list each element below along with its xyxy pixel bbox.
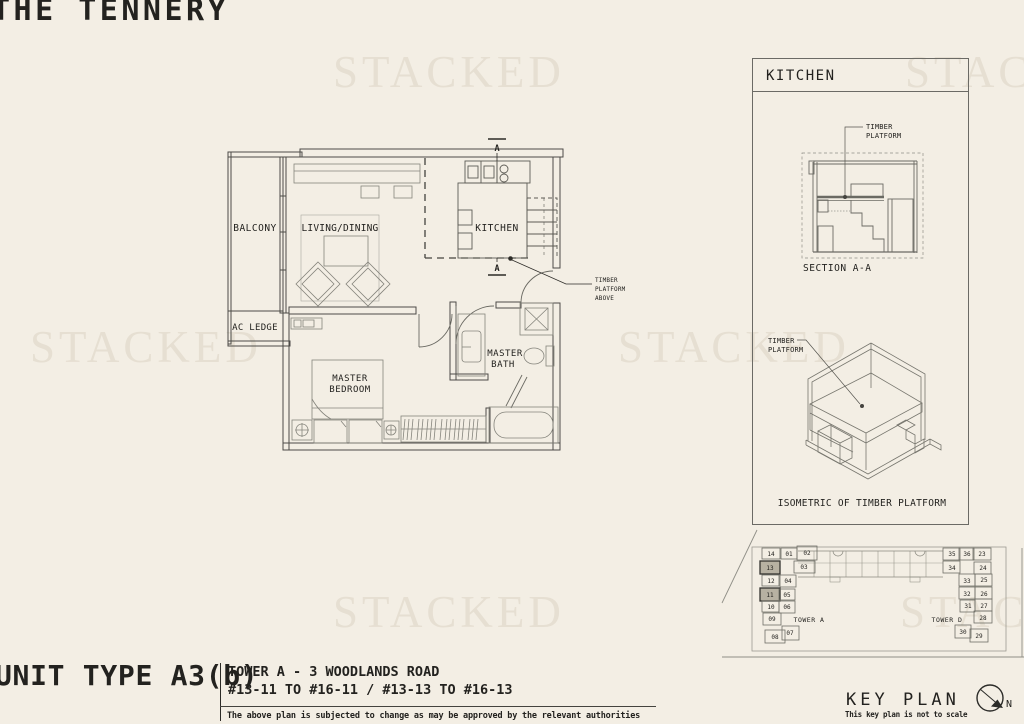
- keyplan-unit-label: 02: [803, 550, 811, 557]
- tower-address: TOWER A - 3 WOODLANDS ROAD: [228, 664, 439, 680]
- timber-platform-above-callout: PLATFORM: [595, 286, 626, 293]
- keyplan-unit-label: 01: [785, 551, 793, 558]
- keyplan-unit-36: [959, 548, 974, 560]
- keyplan-unit-label: 33: [963, 578, 971, 585]
- keyplan-unit-25: [975, 574, 992, 586]
- timber-platform-above-callout: ABOVE: [595, 295, 614, 302]
- keyplan-unit-34: [943, 561, 960, 573]
- master-bath-label: BATH: [491, 360, 515, 370]
- key-plan-tower-a: [760, 546, 817, 643]
- stacked-watermark: STACKED: [333, 586, 565, 638]
- keyplan-unit-label: 03: [800, 564, 808, 571]
- keyplan-unit-10: [762, 601, 779, 612]
- keyplan-unit-05: [779, 589, 795, 600]
- kitchen-fixtures: [425, 158, 557, 258]
- keyplan-unit-label: 04: [784, 578, 792, 585]
- keyplan-unit-label: 13: [766, 565, 774, 572]
- north-label: N: [1006, 699, 1012, 710]
- floor-plan-page: STACKED STACKED STACKED STACKED STACKED …: [0, 0, 1024, 724]
- keyplan-unit-04: [780, 575, 796, 587]
- keyplan-unit-08: [765, 630, 785, 643]
- keyplan-unit-label: 08: [771, 634, 779, 641]
- unit-numbers: #13-11 TO #16-11 / #13-13 TO #16-13: [228, 682, 512, 698]
- page-title: THE TENNERY: [0, 0, 229, 28]
- keyplan-unit-label: 09: [768, 616, 776, 623]
- keyplan-unit-12: [762, 575, 779, 586]
- disclaimer-text: The above plan is subjected to change as…: [227, 711, 640, 721]
- bathroom-fixtures: [458, 303, 558, 443]
- kitchen-panel-title: KITCHEN: [753, 59, 968, 92]
- master-bedroom-label: MASTER: [332, 374, 368, 384]
- master-bedroom-label: BEDROOM: [329, 385, 371, 395]
- keyplan-unit-33: [959, 574, 975, 586]
- keyplan-unit-label: 11: [766, 592, 774, 599]
- keyplan-unit-label: 23: [978, 551, 986, 558]
- keyplan-unit-label: 35: [948, 551, 956, 558]
- keyplan-unit-11: [760, 588, 780, 601]
- keyplan-unit-35: [943, 548, 960, 560]
- keyplan-unit-06: [779, 601, 795, 613]
- floor-plan-labels: BALCONY LIVING/DINING KITCHEN AC LEDGE M…: [232, 144, 626, 395]
- keyplan-unit-label: 05: [783, 592, 791, 599]
- keyplan-unit-label: 14: [767, 551, 775, 558]
- keyplan-unit-09: [763, 613, 781, 625]
- keyplan-unit-13: [760, 561, 780, 574]
- tower-a-label: TOWER A: [794, 616, 825, 624]
- keyplan-unit-label: 06: [783, 604, 791, 611]
- bedroom-furniture: [292, 360, 486, 443]
- timber-platform-above-callout: TIMBER: [595, 277, 618, 284]
- stacked-watermark: STACKED: [333, 46, 565, 98]
- north-compass-icon: N: [977, 685, 1012, 711]
- key-plan-caption: KEY PLAN: [846, 690, 960, 710]
- stacked-watermark: STACKED: [900, 586, 1024, 638]
- kitchen-detail-panel: KITCHEN: [752, 58, 969, 525]
- section-marker-a-top: A: [494, 144, 499, 154]
- living-furniture: [291, 164, 420, 329]
- keyplan-unit-label: 24: [979, 565, 987, 572]
- balcony-label: BALCONY: [233, 223, 277, 234]
- kitchen-label: KITCHEN: [475, 223, 519, 234]
- keyplan-unit-02: [797, 546, 817, 560]
- keyplan-unit-label: 10: [767, 604, 775, 611]
- unit-floor-plan-walls: [228, 149, 563, 450]
- title-block-divider: [220, 663, 221, 721]
- keyplan-unit-01: [781, 548, 797, 559]
- keyplan-unit-label: 36: [963, 551, 971, 558]
- keyplan-unit-label: 25: [980, 577, 988, 584]
- key-plan-mid-block: [798, 551, 943, 582]
- section-markers: [488, 139, 592, 284]
- stacked-watermark: STACKED: [30, 321, 262, 373]
- keyplan-unit-23: [973, 548, 991, 560]
- keyplan-unit-label: 07: [786, 630, 794, 637]
- keyplan-unit-14: [762, 548, 780, 559]
- keyplan-unit-24: [974, 562, 991, 574]
- keyplan-unit-label: 12: [767, 578, 775, 585]
- keyplan-unit-label: 34: [948, 565, 956, 572]
- keyplan-unit-03: [794, 561, 815, 573]
- key-plan-note: This key plan is not to scale: [845, 710, 967, 719]
- section-marker-a-bottom: A: [494, 264, 499, 274]
- disclaimer-rule: [220, 706, 656, 707]
- master-bath-label: MASTER: [487, 349, 523, 359]
- living-dining-label: LIVING/DINING: [302, 223, 379, 234]
- keyplan-unit-07: [782, 626, 799, 640]
- unit-floor-plan-doors: [419, 271, 553, 408]
